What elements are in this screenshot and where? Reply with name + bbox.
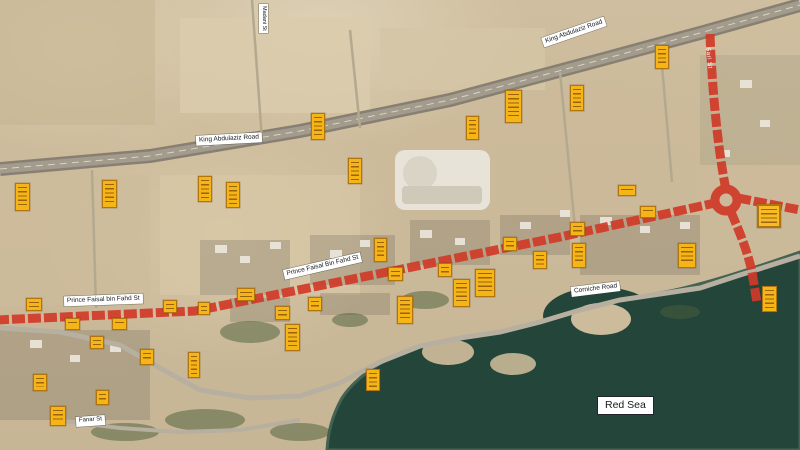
survey-marker (618, 185, 636, 196)
survey-marker (140, 349, 154, 365)
survey-marker (188, 352, 200, 378)
survey-marker (102, 180, 117, 208)
survey-marker (757, 204, 781, 228)
mall-building (395, 150, 490, 210)
survey-marker (163, 300, 177, 313)
street-label-vertical-top: Madani St (259, 4, 268, 33)
survey-marker (33, 374, 47, 391)
survey-marker (366, 369, 380, 391)
survey-marker (762, 286, 777, 312)
survey-marker (570, 85, 584, 111)
survey-marker (198, 302, 210, 315)
survey-marker (285, 324, 300, 351)
street-label-bottom-left: Fanar St (76, 415, 106, 427)
survey-marker (505, 90, 522, 123)
survey-marker (466, 116, 479, 140)
satellite-map: King Abdulaziz Road King Abdulaziz Road … (0, 0, 800, 450)
survey-marker (226, 182, 240, 208)
survey-marker (570, 222, 585, 236)
survey-marker (438, 263, 452, 277)
survey-marker (572, 243, 586, 268)
survey-marker (308, 297, 322, 311)
survey-marker (26, 298, 42, 311)
map-artwork (0, 0, 800, 450)
survey-marker (374, 238, 387, 262)
survey-marker (15, 183, 30, 211)
water (327, 252, 800, 450)
survey-marker (475, 269, 495, 297)
survey-marker (237, 288, 255, 301)
survey-marker (275, 306, 290, 320)
survey-marker (198, 176, 212, 202)
survey-marker (96, 390, 109, 405)
survey-marker (503, 237, 517, 251)
survey-marker (112, 318, 127, 330)
route-roundabout (715, 189, 737, 211)
survey-marker (65, 318, 80, 330)
survey-marker (533, 251, 547, 269)
survey-marker (90, 336, 104, 349)
sea-label-red-sea: Red Sea (597, 396, 654, 415)
survey-marker (388, 267, 403, 281)
survey-marker (655, 45, 669, 69)
survey-marker (311, 113, 325, 140)
survey-marker (453, 279, 470, 307)
survey-marker (50, 406, 66, 426)
survey-marker (397, 296, 413, 324)
survey-marker (348, 158, 362, 184)
survey-marker (640, 206, 656, 218)
survey-marker (678, 243, 696, 268)
